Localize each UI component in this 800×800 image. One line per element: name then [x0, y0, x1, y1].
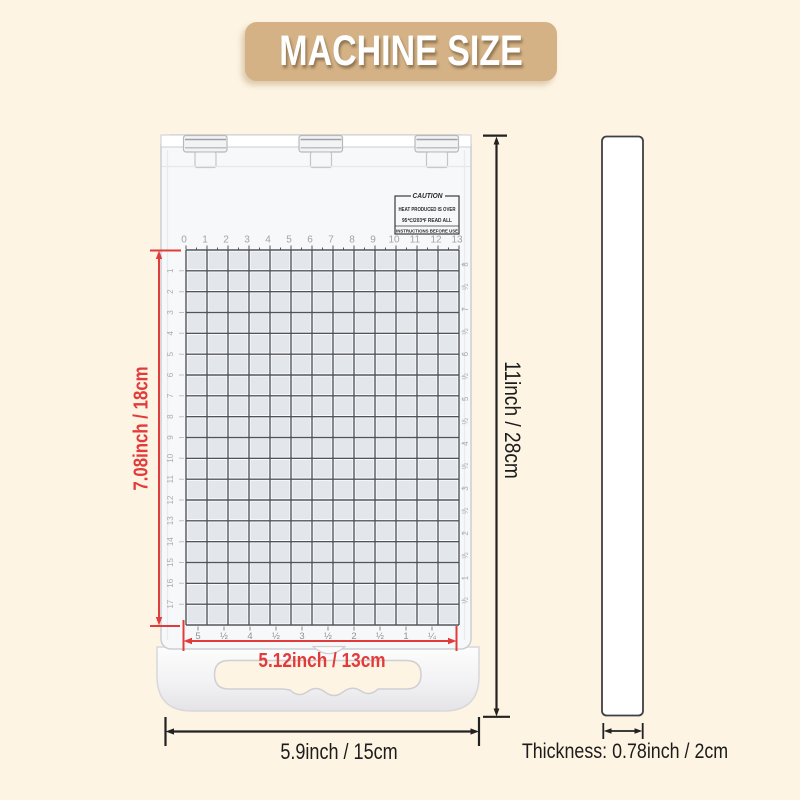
svg-text:95℃/203℉ READ ALL: 95℃/203℉ READ ALL — [402, 217, 452, 224]
svg-text:HEAT PRODUCED IS OVER: HEAT PRODUCED IS OVER — [399, 207, 456, 213]
svg-text:4: 4 — [166, 331, 175, 336]
svg-text:13: 13 — [451, 235, 463, 246]
svg-text:3: 3 — [461, 486, 470, 491]
svg-text:13: 13 — [166, 516, 175, 525]
svg-text:½: ½ — [461, 328, 470, 335]
svg-text:½: ½ — [461, 283, 470, 290]
svg-text:½: ½ — [461, 462, 470, 469]
svg-text:6: 6 — [166, 372, 175, 377]
svg-text:5: 5 — [166, 351, 175, 356]
svg-text:5: 5 — [286, 235, 292, 246]
svg-text:12: 12 — [166, 495, 175, 504]
svg-text:7: 7 — [328, 235, 334, 246]
svg-text:INSTRUCTIONS BEFORE USE: INSTRUCTIONS BEFORE USE — [396, 229, 459, 235]
svg-text:7: 7 — [461, 307, 470, 312]
svg-text:8: 8 — [166, 414, 175, 419]
svg-text:11: 11 — [166, 475, 175, 484]
svg-text:8: 8 — [461, 262, 470, 267]
svg-text:6: 6 — [307, 235, 313, 246]
svg-text:½: ½ — [461, 552, 470, 559]
svg-text:8: 8 — [349, 235, 355, 246]
svg-text:1: 1 — [202, 235, 208, 246]
svg-text:9: 9 — [166, 435, 175, 440]
svg-text:0: 0 — [181, 235, 187, 246]
svg-text:1: 1 — [166, 268, 175, 273]
svg-text:3: 3 — [166, 310, 175, 315]
svg-text:CAUTION: CAUTION — [413, 191, 444, 200]
svg-text:½: ½ — [461, 597, 470, 604]
svg-text:15: 15 — [166, 558, 175, 567]
svg-text:11: 11 — [410, 235, 421, 246]
svg-text:2: 2 — [166, 289, 175, 294]
svg-text:10: 10 — [388, 235, 400, 246]
svg-text:9: 9 — [370, 235, 376, 246]
svg-text:4: 4 — [265, 235, 271, 246]
svg-text:6: 6 — [461, 351, 470, 356]
svg-text:14: 14 — [166, 537, 175, 546]
svg-text:17: 17 — [166, 599, 175, 608]
svg-text:½: ½ — [461, 418, 470, 425]
svg-text:1: 1 — [461, 575, 470, 580]
svg-text:5: 5 — [461, 396, 470, 401]
svg-text:½: ½ — [461, 507, 470, 514]
svg-text:½: ½ — [461, 373, 470, 380]
svg-text:2: 2 — [223, 235, 229, 246]
svg-text:12: 12 — [430, 235, 442, 246]
svg-text:10: 10 — [166, 453, 175, 462]
svg-text:2: 2 — [461, 531, 470, 536]
svg-text:7: 7 — [166, 393, 175, 398]
svg-text:16: 16 — [166, 578, 175, 587]
svg-text:4: 4 — [461, 441, 470, 446]
svg-text:3: 3 — [244, 235, 250, 246]
